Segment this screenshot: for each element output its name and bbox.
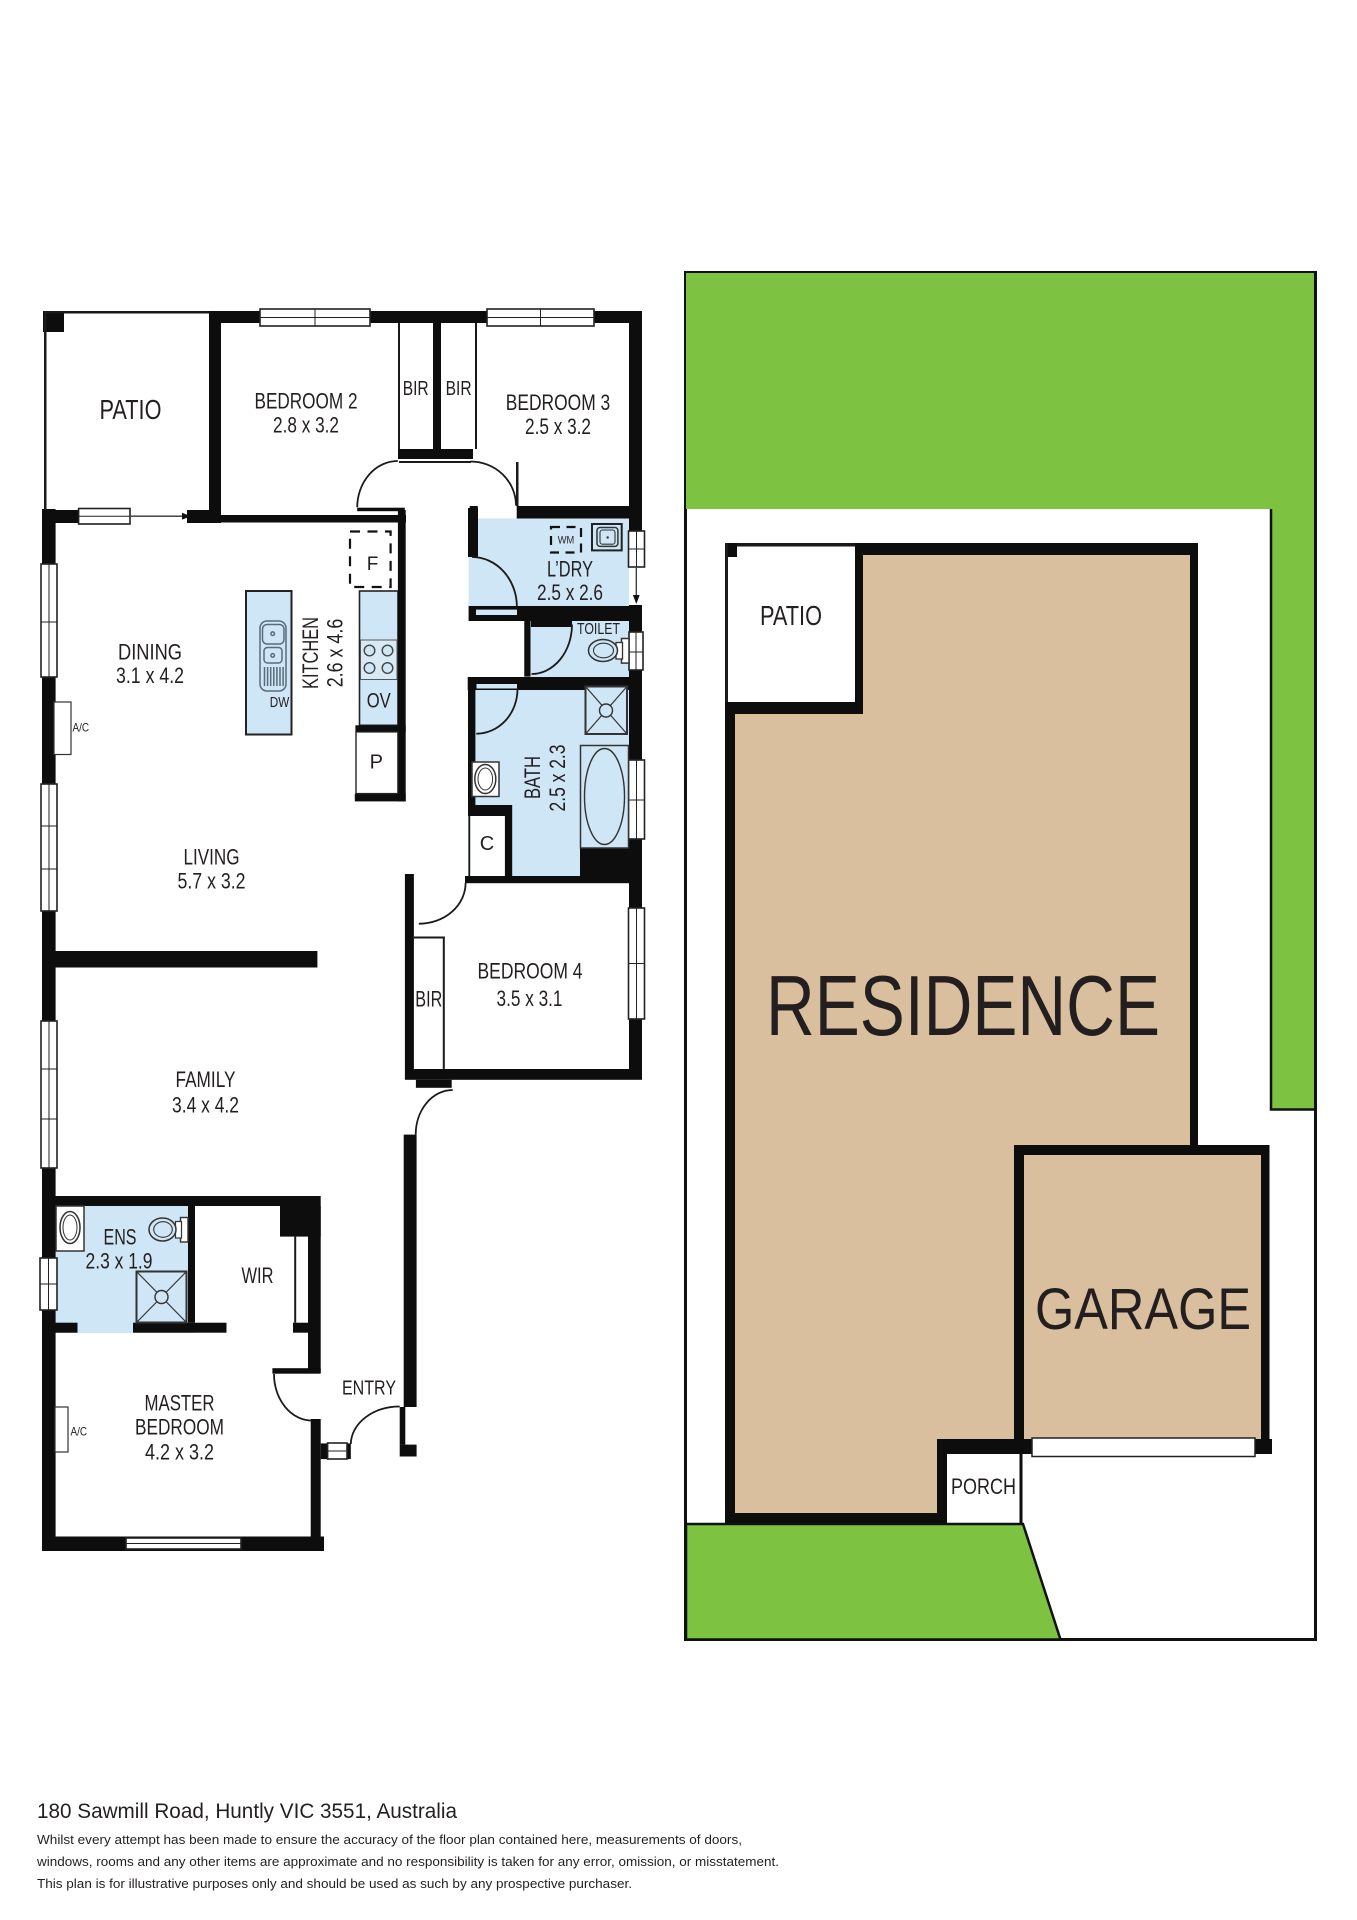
svg-text:Whilst every attempt has been: Whilst every attempt has been made to en… [37, 1832, 742, 1847]
svg-text:WM: WM [558, 535, 575, 547]
svg-text:BEDROOM 4: BEDROOM 4 [478, 958, 583, 983]
svg-text:F: F [367, 554, 379, 575]
svg-text:ENTRY: ENTRY [342, 1378, 396, 1400]
svg-text:PATIO: PATIO [760, 600, 822, 631]
svg-text:3.5 x 3.1: 3.5 x 3.1 [497, 986, 563, 1011]
svg-text:GARAGE: GARAGE [1035, 1277, 1251, 1342]
svg-text:3.4 x 4.2: 3.4 x 4.2 [172, 1092, 239, 1117]
svg-text:PORCH: PORCH [951, 1474, 1016, 1499]
svg-text:This plan is for illustrative: This plan is for illustrative purposes o… [37, 1876, 632, 1891]
svg-text:2.6 x 4.6: 2.6 x 4.6 [323, 619, 348, 688]
svg-text:2.3 x 1.9: 2.3 x 1.9 [86, 1249, 153, 1274]
svg-text:A/C: A/C [73, 721, 90, 735]
svg-text:BEDROOM 2: BEDROOM 2 [255, 389, 358, 414]
svg-text:RESIDENCE: RESIDENCE [766, 959, 1160, 1054]
svg-text:2.5 x 2.6: 2.5 x 2.6 [537, 580, 603, 605]
svg-text:2.8 x 3.2: 2.8 x 3.2 [273, 413, 339, 438]
svg-text:2.5 x 2.3: 2.5 x 2.3 [545, 745, 570, 812]
svg-text:FAMILY: FAMILY [176, 1067, 236, 1092]
svg-text:windows, rooms and any other i: windows, rooms and any other items are a… [36, 1854, 779, 1869]
svg-text:KITCHEN: KITCHEN [298, 617, 323, 689]
svg-text:C: C [480, 833, 494, 855]
svg-text:LIVING: LIVING [184, 845, 240, 870]
svg-text:180 Sawmill Road, Huntly VIC 3: 180 Sawmill Road, Huntly VIC 3551, Austr… [37, 1800, 457, 1823]
svg-text:5.7 x 3.2: 5.7 x 3.2 [178, 868, 246, 893]
svg-text:BIR: BIR [403, 378, 429, 400]
svg-text:BEDROOM 3: BEDROOM 3 [506, 390, 611, 415]
svg-text:4.2 x 3.2: 4.2 x 3.2 [145, 1440, 214, 1465]
svg-text:PATIO: PATIO [100, 394, 162, 425]
svg-text:ENS: ENS [104, 1225, 137, 1250]
svg-text:DW: DW [270, 695, 290, 711]
svg-text:A/C: A/C [71, 1425, 88, 1439]
svg-text:BIR: BIR [446, 378, 472, 400]
svg-text:TOILET: TOILET [577, 621, 620, 638]
svg-text:DINING: DINING [118, 640, 182, 665]
svg-text:MASTER: MASTER [145, 1391, 215, 1416]
svg-text:P: P [370, 751, 383, 773]
svg-text:WIR: WIR [242, 1263, 274, 1288]
svg-text:L’DRY: L’DRY [547, 557, 593, 582]
svg-text:2.5 x 3.2: 2.5 x 3.2 [525, 414, 591, 439]
svg-text:OV: OV [367, 690, 391, 713]
svg-text:3.1 x 4.2: 3.1 x 4.2 [116, 663, 184, 688]
svg-text:BATH: BATH [520, 756, 545, 799]
svg-text:BEDROOM: BEDROOM [135, 1414, 224, 1439]
svg-text:BIR: BIR [415, 987, 442, 1012]
